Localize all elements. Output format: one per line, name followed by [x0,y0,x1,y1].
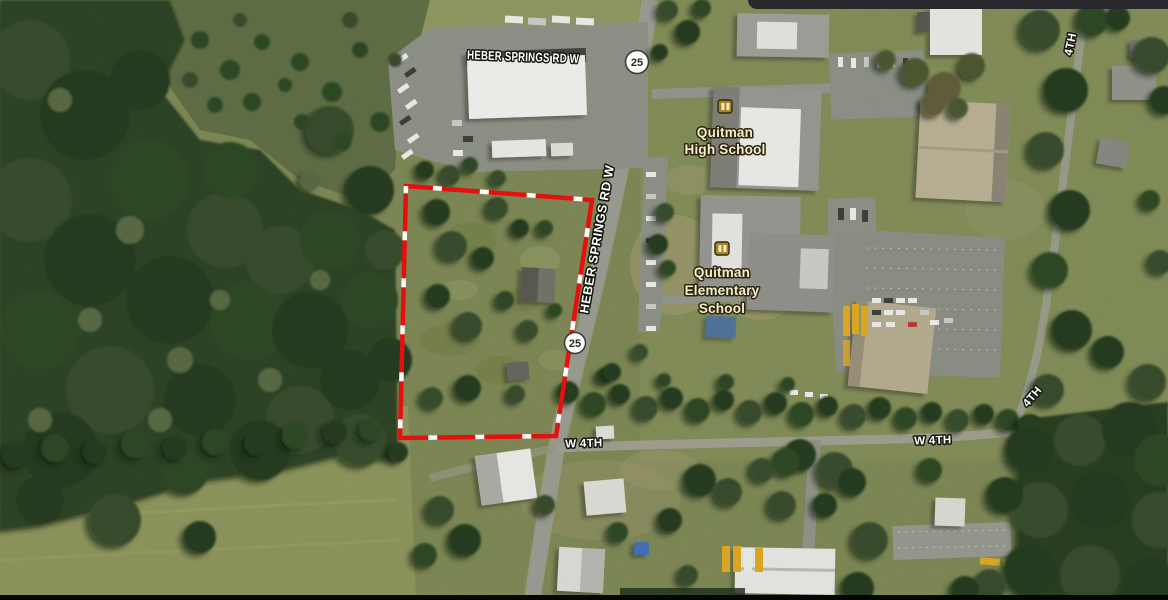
svg-text:Quitman: Quitman [694,265,750,280]
svg-text:High School: High School [685,142,766,157]
svg-text:Quitman: Quitman [697,125,753,140]
svg-text:School: School [699,301,745,316]
road-label-w4th-west: W 4TH [565,437,603,450]
route-shield-25-north: 25 [626,51,649,74]
road-label-w4th-east: W 4TH [914,434,952,447]
svg-text:25: 25 [631,57,643,69]
svg-text:25: 25 [569,338,581,350]
map-viewport[interactable]: HEBER SPRINGS RD W HEBER SPRINGS RD W W … [0,0,1168,600]
school-icon [715,242,729,255]
school-icon [718,100,732,113]
letterbox-bottom [0,595,1168,600]
svg-text:Elementary: Elementary [685,283,760,298]
route-shield-25-south: 25 [565,333,586,354]
browser-toolbar-fragment [748,0,1168,9]
satellite-map[interactable]: HEBER SPRINGS RD W HEBER SPRINGS RD W W … [0,0,1168,600]
